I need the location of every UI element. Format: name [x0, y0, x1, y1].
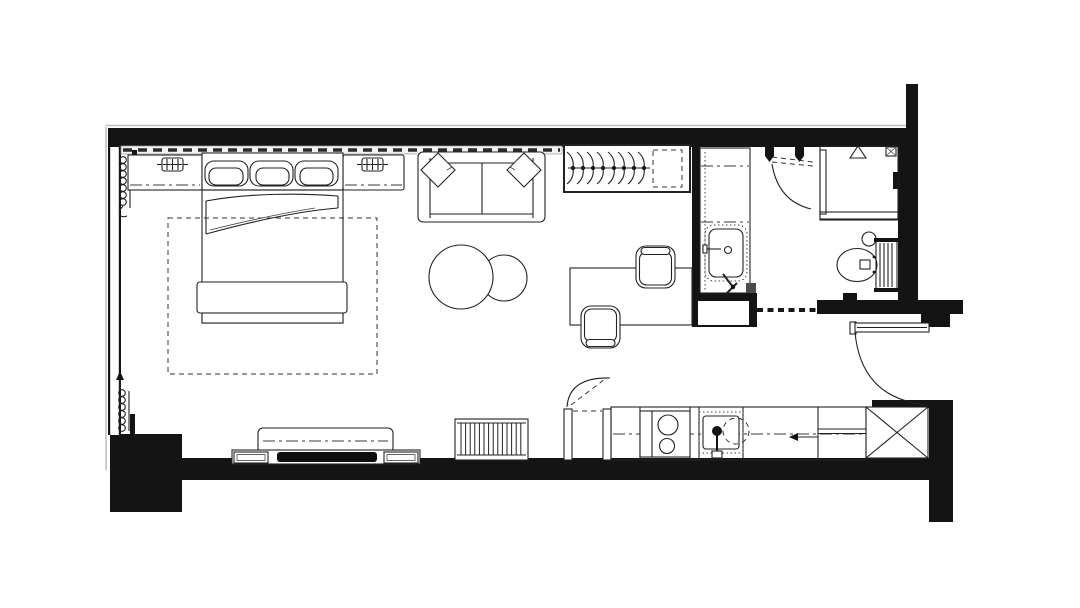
kitchen-door [564, 378, 611, 460]
entry-door [850, 322, 929, 405]
bathroom-door [765, 147, 813, 209]
coffee-tables [429, 245, 527, 309]
kitchen-shelf [818, 429, 866, 434]
floor-plan-canvas [0, 0, 1080, 608]
tv-bench [258, 428, 393, 453]
sofa [418, 152, 545, 222]
stove [640, 411, 690, 457]
wardrobe [564, 145, 690, 192]
towel-radiator [874, 238, 899, 292]
lamp-left [157, 158, 188, 171]
lamp-right [357, 158, 388, 171]
appliance-space [866, 407, 928, 458]
kitchen-counter [611, 407, 866, 460]
fixture-box [746, 283, 756, 293]
divider-niche [698, 301, 749, 325]
floor-drain [886, 147, 896, 156]
floor-plan-svg [0, 0, 1080, 608]
toilet [837, 249, 877, 282]
shower-handle [893, 172, 898, 189]
kitchen-sink [699, 412, 749, 458]
vanity [700, 148, 756, 294]
tv-console [232, 450, 420, 464]
radiator-living [455, 419, 528, 460]
cistern-button [862, 232, 876, 246]
bed-foot-bench [197, 282, 347, 323]
desk-chair-top [636, 246, 675, 288]
shower [820, 146, 898, 220]
tv-screen [277, 452, 377, 462]
desk-chair-bottom [581, 306, 620, 348]
shower-head [850, 146, 866, 158]
